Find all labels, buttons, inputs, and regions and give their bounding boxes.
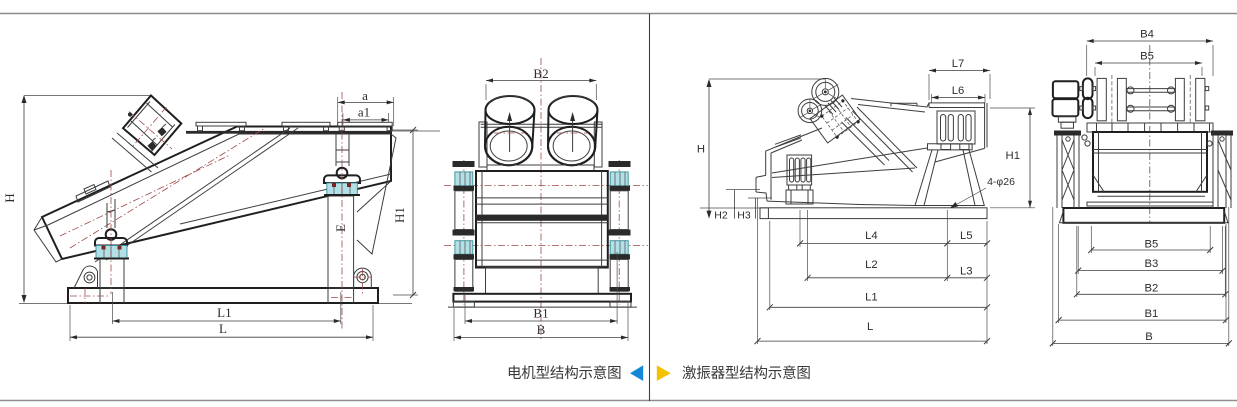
svg-text:B5: B5 bbox=[1140, 51, 1154, 63]
svg-text:B: B bbox=[1145, 331, 1153, 343]
svg-text:L7: L7 bbox=[952, 58, 965, 70]
svg-text:B2: B2 bbox=[533, 66, 548, 81]
svg-text:H1: H1 bbox=[392, 207, 407, 223]
svg-text:H2: H2 bbox=[714, 210, 728, 222]
svg-text:a: a bbox=[362, 88, 368, 103]
svg-text:L6: L6 bbox=[952, 85, 965, 97]
svg-text:L1: L1 bbox=[217, 305, 231, 320]
svg-text:B2: B2 bbox=[1144, 283, 1158, 295]
svg-text:B3: B3 bbox=[1144, 258, 1158, 270]
svg-text:B: B bbox=[537, 322, 546, 337]
svg-text:电机型结构示意图: 电机型结构示意图 bbox=[507, 364, 621, 382]
svg-text:L1: L1 bbox=[865, 291, 878, 303]
svg-text:H: H bbox=[697, 144, 705, 156]
svg-text:E: E bbox=[333, 224, 348, 232]
svg-text:4-φ26: 4-φ26 bbox=[987, 176, 1015, 188]
svg-text:L: L bbox=[867, 321, 873, 333]
svg-text:B4: B4 bbox=[1140, 29, 1154, 41]
svg-text:L2: L2 bbox=[865, 259, 878, 271]
svg-text:L3: L3 bbox=[960, 265, 973, 277]
svg-text:B1: B1 bbox=[533, 306, 548, 321]
svg-text:L5: L5 bbox=[960, 230, 973, 242]
svg-text:H: H bbox=[2, 193, 17, 202]
svg-text:a1: a1 bbox=[358, 105, 370, 120]
svg-text:L: L bbox=[219, 321, 227, 336]
svg-text:B5: B5 bbox=[1144, 238, 1158, 250]
svg-text:H3: H3 bbox=[737, 210, 751, 222]
svg-text:激振器型结构示意图: 激振器型结构示意图 bbox=[682, 364, 811, 382]
svg-text:H1: H1 bbox=[1006, 150, 1020, 162]
svg-text:L4: L4 bbox=[865, 230, 878, 242]
svg-text:B1: B1 bbox=[1144, 308, 1158, 320]
